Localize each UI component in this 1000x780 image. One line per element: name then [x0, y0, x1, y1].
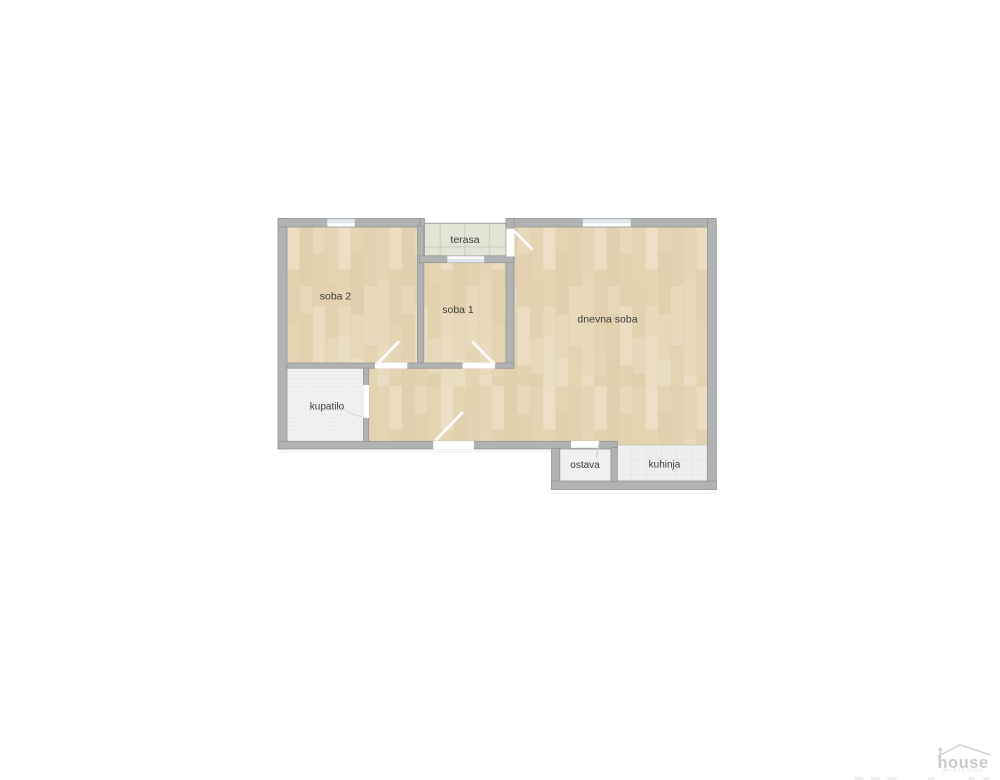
- svg-text:ostava: ostava: [570, 460, 600, 471]
- svg-text:soba 1: soba 1: [442, 304, 474, 316]
- svg-text:kupatilo: kupatilo: [310, 402, 345, 413]
- svg-text:soba 2: soba 2: [320, 291, 352, 303]
- svg-text:MARKETING: MARKETING: [943, 768, 983, 773]
- svg-text:terasa: terasa: [450, 234, 479, 246]
- svg-text:dnevna soba: dnevna soba: [577, 314, 637, 326]
- svg-text:kuhinja: kuhinja: [649, 460, 681, 471]
